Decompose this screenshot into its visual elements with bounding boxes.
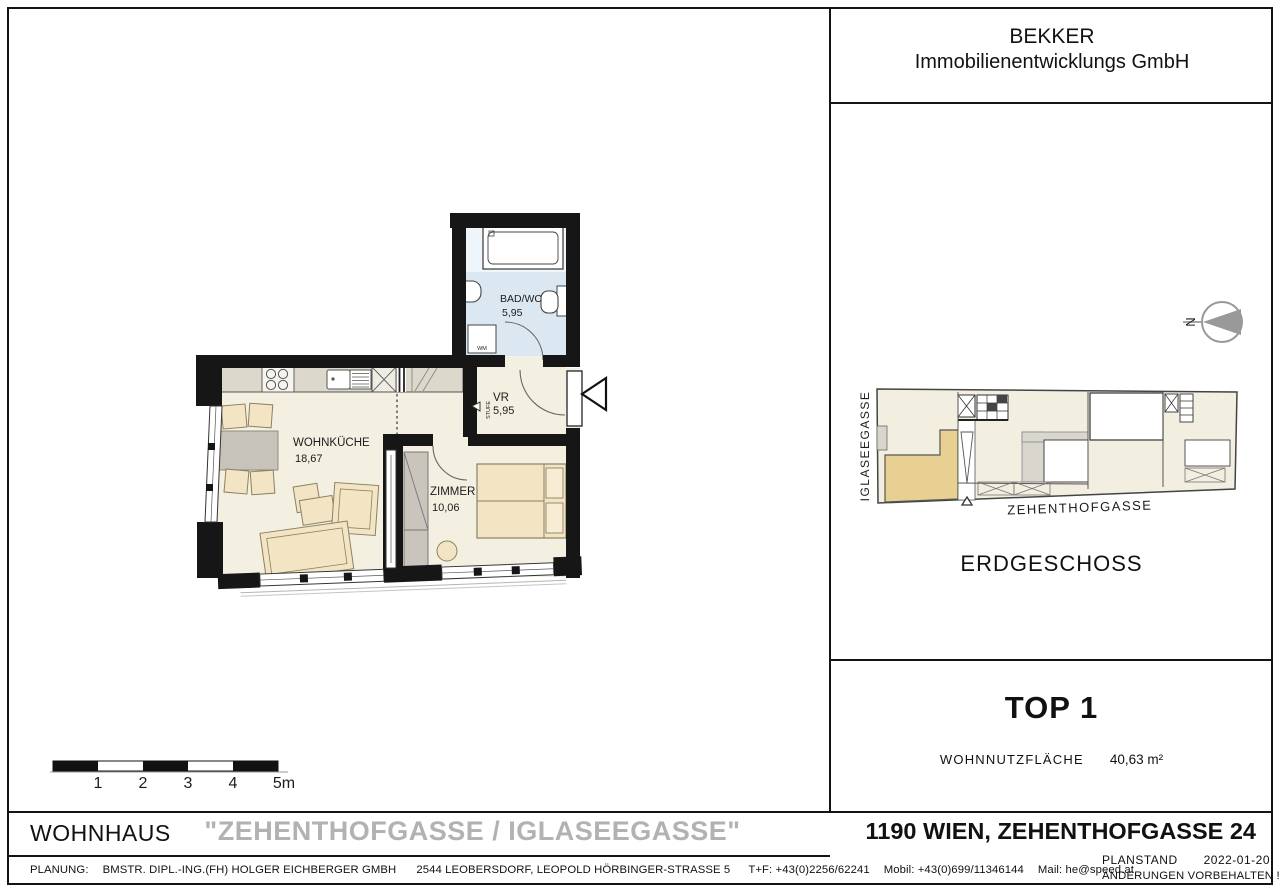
kitchen-counter <box>210 367 463 392</box>
floor-plan: WM <box>196 213 606 597</box>
bathtub-icon <box>483 227 563 269</box>
coffee-table <box>299 495 336 525</box>
chair <box>224 469 249 494</box>
unit-area-row: WOHNNUTZFLÄCHE 40,63 m² <box>830 752 1273 767</box>
svg-text:1: 1 <box>94 775 103 792</box>
site-plan: IGLASEEGASSE ZEHENTHOFGASSE <box>858 389 1237 518</box>
room-area-wohnkueche: 18,67 <box>295 453 323 465</box>
dining-table <box>217 431 278 470</box>
company-header: BEKKER Immobilienentwicklungs GmbH <box>831 24 1273 75</box>
wardrobe <box>404 452 428 573</box>
company-subtitle: Immobilienentwicklungs GmbH <box>831 50 1273 75</box>
room-area-bad: 5,95 <box>502 307 523 319</box>
level-label: ERDGESCHOSS <box>830 551 1273 577</box>
planstand-date: 2022-01-20 <box>1204 853 1270 867</box>
room-label-vr: VR <box>493 392 509 404</box>
company-name: BEKKER <box>831 24 1273 50</box>
svg-text:2: 2 <box>139 775 148 792</box>
unit-title: TOP 1 <box>830 690 1273 726</box>
svg-text:5m: 5m <box>273 775 295 792</box>
fridge-icon <box>372 367 396 392</box>
planner-label: PLANUNG: <box>30 864 89 876</box>
north-letter: N <box>1183 317 1198 326</box>
stool <box>437 541 457 561</box>
chair <box>250 470 275 495</box>
cooktop-icon <box>262 367 294 392</box>
scale-bar-labels: 1 2 3 4 5m <box>94 775 296 792</box>
street-label-bottom: ZEHENTHOFGASSE <box>1007 497 1153 517</box>
svg-text:3: 3 <box>184 775 193 792</box>
chair <box>221 404 247 429</box>
planstand-block: PLANSTAND 2022-01-20 ÄNDERUNGEN VORBEHAL… <box>1102 853 1270 882</box>
building-type-label: WOHNHAUS <box>30 820 171 847</box>
washing-machine-icon: WM <box>468 325 496 353</box>
planner-line: PLANUNG:BMSTR. DIPL.-ING.(FH) HOLGER EIC… <box>30 864 1134 876</box>
planner-firm: BMSTR. DIPL.-ING.(FH) HOLGER EICHBERGER … <box>103 864 397 876</box>
scale-bar: 1 2 3 4 5m <box>50 761 295 792</box>
svg-text:WM: WM <box>477 346 487 352</box>
project-name: "ZEHENTHOFGASSE / IGLASEEGASSE" <box>185 816 760 847</box>
room-label-zimmer: ZIMMER <box>430 486 475 498</box>
room-label-bad: BAD/WC <box>500 293 542 305</box>
sink-icon <box>327 370 371 389</box>
room-area-zimmer: 10,06 <box>432 502 460 514</box>
room-area-vr: 5,95 <box>493 405 514 417</box>
planstand-label: PLANSTAND <box>1102 853 1178 867</box>
step-label: STUFE <box>486 401 492 419</box>
room-label-wohnkueche: WOHNKÜCHE <box>293 437 370 449</box>
planner-mobile: Mobil: +43(0)699/11346144 <box>884 864 1024 876</box>
street-label-left: IGLASEEGASSE <box>858 391 872 502</box>
planner-phone: T+F: +43(0)2256/62241 <box>748 864 869 876</box>
terrace-edge-line <box>241 584 567 597</box>
chair <box>248 403 273 428</box>
planner-address: 2544 LEOBERSDORF, LEOPOLD HÖRBINGER-STRA… <box>416 864 730 876</box>
svg-text:4: 4 <box>229 775 238 792</box>
changes-note: ÄNDERUNGEN VORBEHALTEN ! <box>1102 870 1270 882</box>
north-arrow-icon: N <box>1183 302 1242 342</box>
bed <box>477 464 566 538</box>
entry-door-leaf <box>567 371 582 426</box>
unit-area-value: 40,63 m² <box>1110 752 1163 767</box>
unit-area-label: WOHNNUTZFLÄCHE <box>940 752 1084 767</box>
entry-arrow-icon <box>582 378 606 410</box>
project-address: 1190 WIEN, ZEHENTHOFGASSE 24 <box>866 818 1256 845</box>
bath-door-threshold <box>505 356 543 368</box>
